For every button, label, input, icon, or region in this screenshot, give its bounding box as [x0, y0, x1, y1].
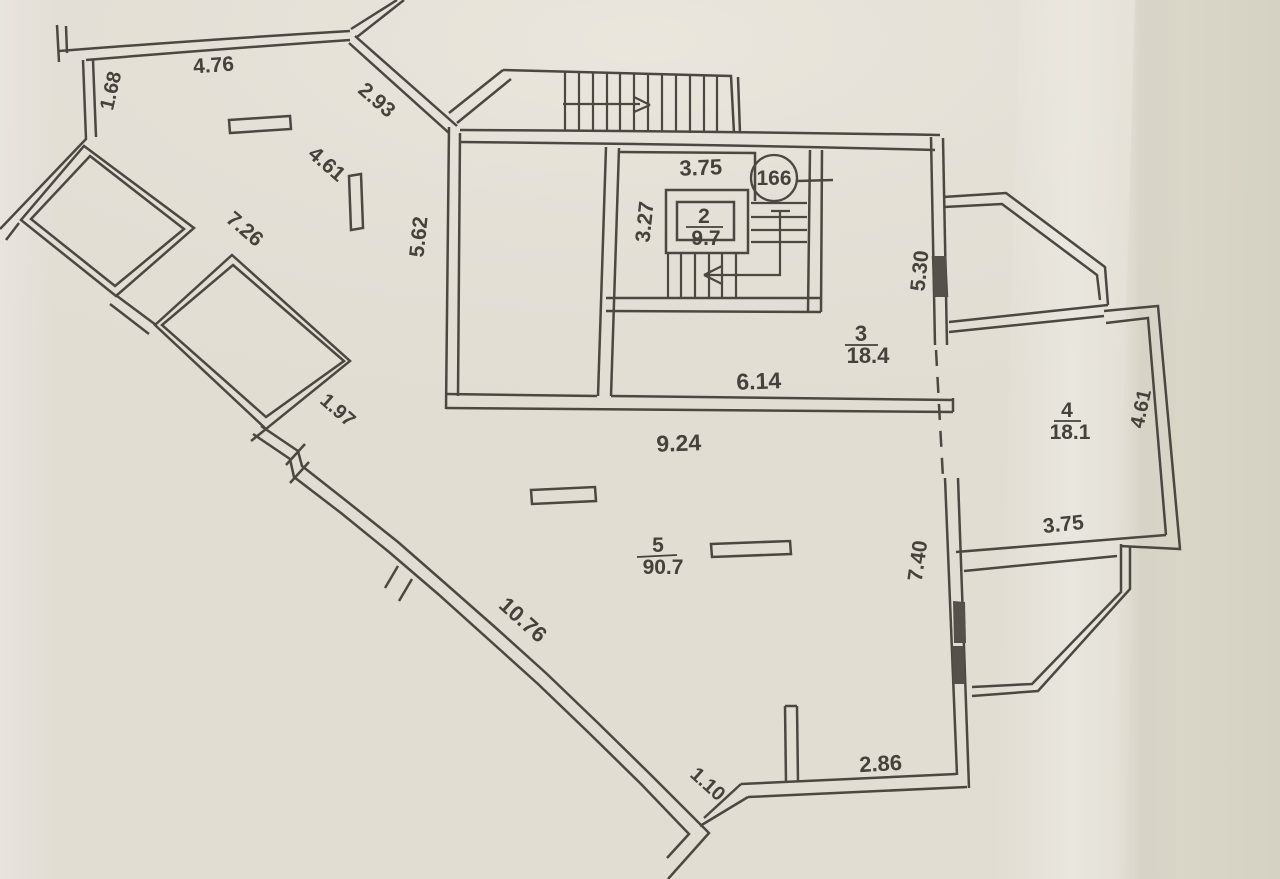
svg-text:166: 166 [756, 167, 791, 190]
svg-text:18.1: 18.1 [1050, 421, 1091, 444]
svg-text:90.7: 90.7 [643, 556, 684, 579]
svg-text:2: 2 [698, 205, 710, 228]
svg-text:4: 4 [1061, 399, 1073, 422]
svg-text:3.27: 3.27 [631, 200, 658, 243]
svg-text:5.30: 5.30 [906, 249, 933, 292]
svg-text:6.14: 6.14 [736, 367, 782, 395]
svg-text:4.76: 4.76 [192, 53, 234, 79]
svg-text:2.86: 2.86 [859, 750, 903, 777]
svg-text:3.75: 3.75 [679, 154, 723, 180]
svg-text:5.62: 5.62 [405, 215, 432, 258]
svg-text:3.75: 3.75 [1042, 511, 1085, 538]
svg-text:18.4: 18.4 [847, 343, 891, 368]
svg-text:9.24: 9.24 [656, 429, 702, 457]
svg-text:9.7: 9.7 [691, 227, 720, 250]
svg-text:5: 5 [652, 534, 664, 557]
